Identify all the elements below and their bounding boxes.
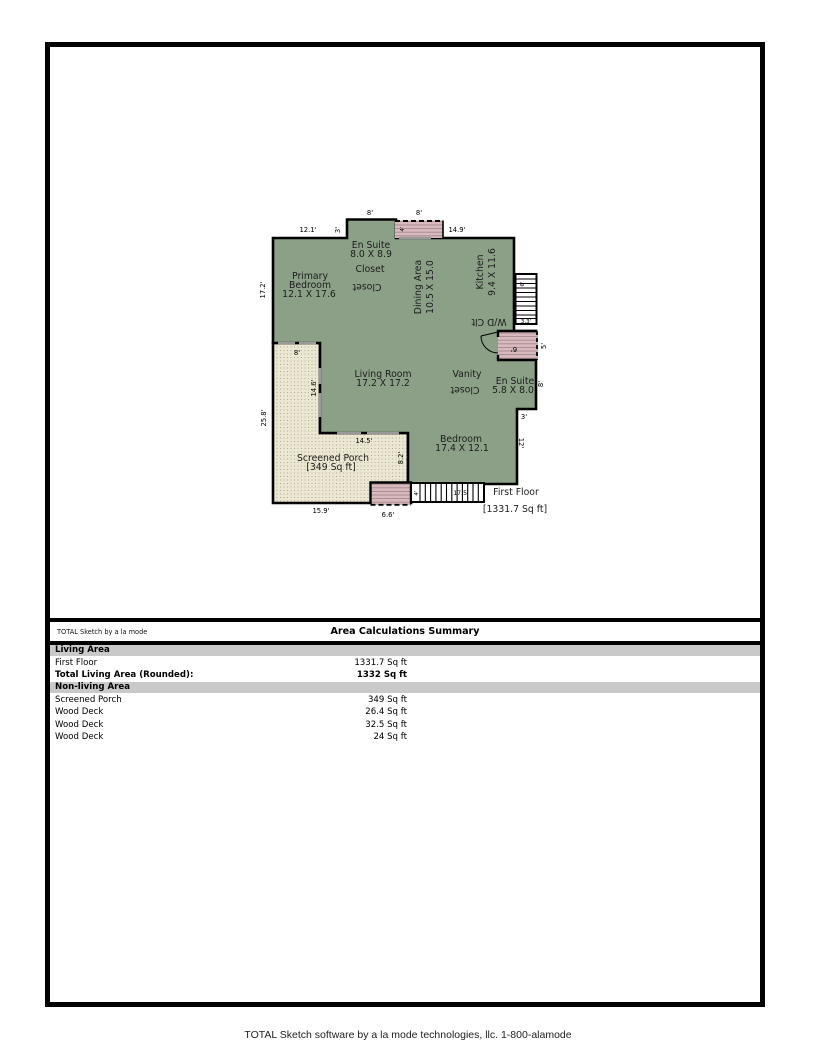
room-dims-kitchen: 9.4 X 11.6 (487, 248, 498, 296)
floor-plan: 6' 3.3' 4' 17.5' En Suite 8.0 X 8.9 Clos… (253, 200, 573, 530)
dim-label-porch-step: 8.2' (397, 452, 405, 465)
dim-label-porch-door: 8' (294, 349, 300, 357)
room-label-wd-closet: W/D Clt (471, 316, 507, 327)
room-label-dining: Dining Area (413, 260, 424, 314)
room-dims-living: 17.2 X 17.2 (356, 378, 410, 389)
dim-label-bottom-deck: 6.6' (382, 511, 395, 519)
row-value: 32.5 Sq ft (50, 719, 407, 731)
plan-label-first-floor: First Floor (493, 487, 539, 498)
stairs-right: 6' 3.3' (516, 274, 537, 325)
room-dims-bedroom: 17.4 X 12.1 (435, 443, 489, 454)
dim-label-porch-mid: 14.5' (355, 437, 372, 445)
dim-label-bump-side: 3' (334, 227, 342, 233)
dim-label-ensuite-side: 8' (537, 381, 545, 387)
dim-label-bottom-stairs-first: 4' (414, 490, 420, 495)
dim-label-right-stairs-length: 6' (520, 281, 526, 286)
row-value: 1331.7 Sq ft (50, 657, 407, 669)
dim-label-porch-right-upper: 14.6' (310, 379, 318, 396)
room-area-porch: [349 Sq ft] (306, 462, 355, 473)
table-row-total: Total Living Area (Rounded): 1332 Sq ft (50, 669, 760, 681)
room-label-closet-top: Closet (356, 264, 385, 275)
room-dims-en-suite-right: 5.8 X 8.0 (492, 385, 534, 396)
dim-label-porch-bottom: 15.9' (312, 507, 329, 515)
room-label-vanity-closet: Closet (450, 384, 479, 395)
table-row: Wood Deck 26.4 Sq ft (50, 706, 760, 718)
room-label-vanity: Vanity (453, 369, 482, 380)
dim-label-top-deck: 8' (416, 209, 422, 217)
dim-label-jog: 3' (521, 413, 527, 421)
dim-label-bedroom-side: 12' (517, 438, 525, 449)
room-dims-dining: 10.5 X 15.0 (425, 260, 436, 314)
table-row: Wood Deck 24 Sq ft (50, 731, 760, 743)
section-header-nonliving-area: Non-living Area (50, 682, 760, 693)
dim-label-top-right: 14.9' (448, 226, 465, 234)
row-value: 24 Sq ft (50, 731, 407, 743)
dim-label-right-stairs-width: 3.3' (521, 319, 531, 325)
dim-label-top-left: 12.1' (299, 226, 316, 234)
room-dims-primary: 12.1 X 17.6 (282, 289, 336, 300)
dim-label-right-deck-h: 5' (540, 343, 548, 349)
dim-label-right-deck-w: 6' (511, 345, 517, 353)
dim-label-left-lower: 25.8' (260, 409, 268, 426)
plan-area-first-floor: [1331.7 Sq ft] (483, 504, 547, 515)
row-value: 349 Sq ft (50, 694, 407, 706)
wood-deck-bottom (371, 483, 412, 505)
software-footer: TOTAL Sketch software by a la mode techn… (0, 1029, 816, 1041)
summary-title: Area Calculations Summary (50, 626, 760, 637)
area-calculations-summary: TOTAL Sketch by a la mode Area Calculati… (50, 618, 760, 743)
dim-label-top-bump: 8' (367, 209, 373, 217)
stairs-bottom: 4' 17.5' (411, 483, 484, 502)
dim-label-bottom-stairs-length: 17.5' (453, 490, 469, 497)
room-dims-en-suite-top: 8.0 X 8.9 (350, 249, 392, 260)
room-label-closet-top-flipped: Closet (352, 281, 381, 292)
sketch-page: { "colors": { "room_fill": "#8ca087", "p… (0, 0, 816, 1056)
table-row: Wood Deck 32.5 Sq ft (50, 719, 760, 731)
room-label-kitchen: Kitchen (475, 254, 486, 289)
section-header-living-area: Living Area (50, 645, 760, 656)
table-row: Screened Porch 349 Sq ft (50, 694, 760, 706)
table-row: First Floor 1331.7 Sq ft (50, 657, 760, 669)
row-value: 1332 Sq ft (50, 669, 407, 681)
dim-label-top-deck-depth: 4' (400, 226, 406, 231)
dim-label-left-upper: 17.2' (259, 281, 267, 298)
row-value: 26.4 Sq ft (50, 706, 407, 718)
